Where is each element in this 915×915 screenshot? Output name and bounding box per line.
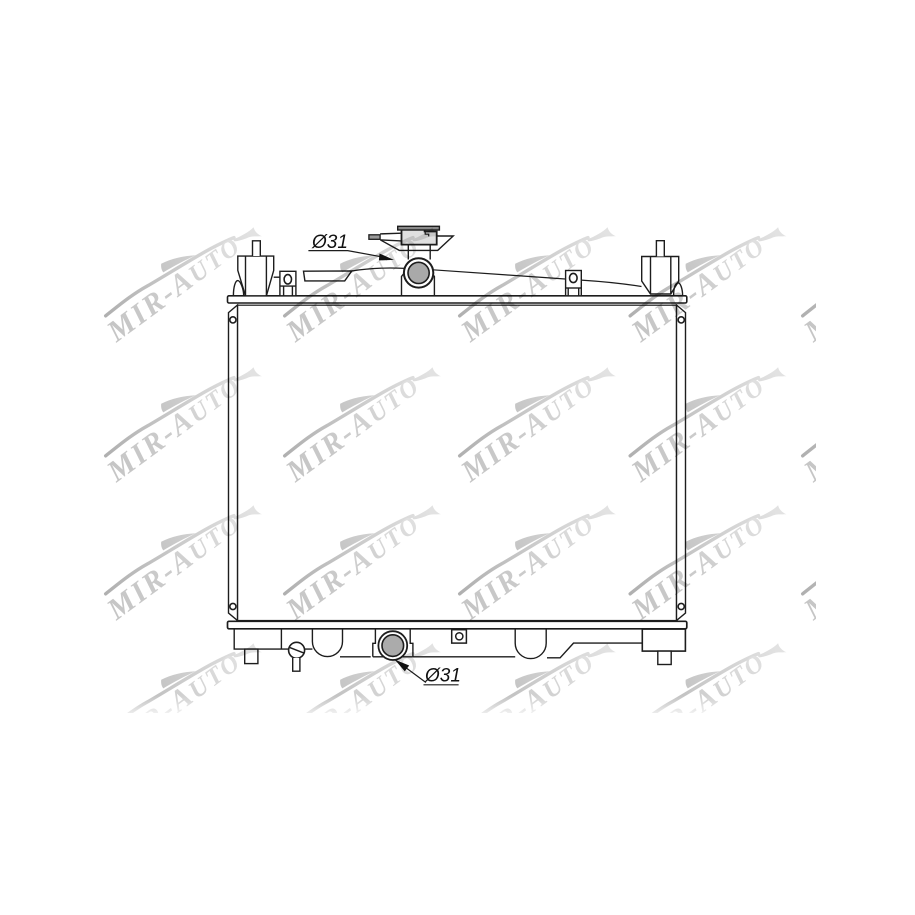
svg-text:Ø31: Ø31 — [424, 666, 461, 687]
svg-text:Ø31: Ø31 — [311, 232, 348, 253]
